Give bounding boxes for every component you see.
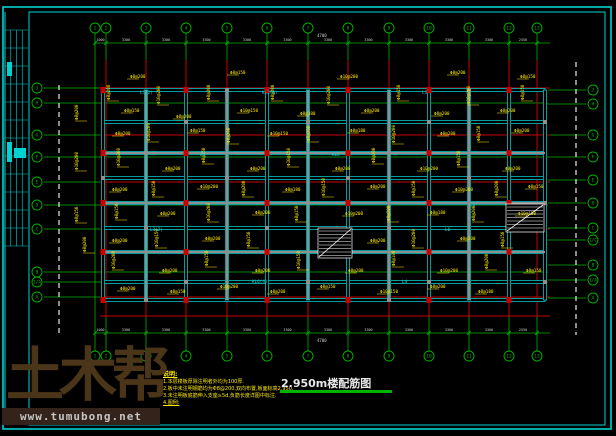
column-red	[507, 87, 512, 93]
rebar-annotation: Φ8@200	[82, 236, 88, 252]
watermark-logo: 土木帮	[6, 346, 165, 404]
axis-bubble-label: 2	[105, 26, 108, 32]
column-gray	[144, 298, 148, 302]
axis-bubble-label: 11	[466, 354, 472, 360]
axis-bubble-label: C	[592, 226, 595, 232]
column-red	[427, 297, 432, 303]
column-gray	[387, 298, 391, 302]
column-red	[346, 200, 351, 206]
dimension-value: 3300	[405, 328, 413, 332]
axis-bubble-label: 10	[426, 354, 432, 360]
rebar-annotation: Φ8@150	[151, 180, 157, 196]
axis-bubble-label: 6	[266, 26, 269, 32]
rebar-annotation: Φ8@150	[246, 231, 252, 247]
rebar-annotation: Φ8@150	[476, 125, 482, 141]
dimension-value: 3300	[324, 38, 332, 42]
axis-bubble-label: G	[592, 133, 595, 139]
column-red	[101, 297, 106, 303]
beam-name-label: KL5	[332, 152, 340, 158]
dimension-value: 3300	[162, 328, 170, 332]
column-red	[101, 150, 106, 156]
rebar-annotation: Φ8@150	[411, 180, 417, 196]
rebar-annotation: Φ8@200	[206, 84, 212, 100]
axis-bubble-label: F	[592, 155, 595, 161]
notes-heading: 说明:	[163, 369, 283, 378]
axis-bubble-label: C	[36, 227, 39, 233]
rebar-annotation: Φ8@200	[241, 180, 247, 196]
axis-bubble-label: 7	[307, 354, 310, 360]
axis-bubble-label: H	[592, 102, 595, 108]
axis-bubble-label: A	[36, 295, 39, 301]
dimension-value: 3300	[485, 38, 493, 42]
column-gray	[427, 120, 431, 124]
beam-name-label: L6	[445, 227, 451, 233]
rebar-annotation: Φ8@150	[520, 84, 526, 100]
column-gray	[225, 176, 229, 180]
axis-bubble-label: 4	[185, 354, 188, 360]
column-gray	[387, 226, 391, 230]
beam-vertical	[101, 90, 104, 300]
axis-bubble-label: 5	[226, 26, 229, 32]
column-red	[101, 249, 106, 255]
axis-bubble-label: A	[592, 296, 595, 302]
column-gray	[184, 280, 188, 284]
column-red	[184, 87, 189, 93]
beam-name-label: L4	[402, 279, 408, 285]
axis-bubble-label: 13	[534, 26, 540, 32]
axis-bubble-label: D	[592, 201, 595, 207]
note-line: 4.图例:	[163, 400, 283, 407]
column-red	[184, 150, 189, 156]
axis-bubble-label: 1/A	[33, 280, 41, 286]
axis-bubble-label: 1/C	[589, 238, 597, 244]
axis-bubble-label: J	[592, 88, 595, 94]
dimension-value: 3300	[364, 38, 372, 42]
axis-bubble-label: 11	[466, 26, 472, 32]
rebar-annotation: Φ8@150	[500, 231, 506, 247]
axis-bubble-label: 6	[266, 354, 269, 360]
rebar-annotation: Φ10@200	[146, 122, 152, 141]
rebar-annotation: Φ10@200	[411, 228, 417, 247]
rebar-annotation: Φ8@200	[106, 84, 112, 100]
rebar-annotation: Φ8@200	[371, 147, 377, 163]
axis-bubble-label: D	[36, 203, 39, 209]
axis-bubble-label: 8	[347, 354, 350, 360]
notes-block: 说明: 1.本层楼板厚除注明者外均为100厚. 2.板中未注明钢筋均为Φ8@20…	[163, 369, 283, 407]
column-gray	[306, 120, 310, 124]
dimension-value: 3300	[162, 38, 170, 42]
rebar-annotation: Φ10@150	[321, 177, 327, 196]
column-red	[507, 297, 512, 303]
dimension-value: 3300	[364, 328, 372, 332]
dimension-value: 3300	[445, 38, 453, 42]
dimension-value: 3300	[283, 328, 291, 332]
titleblock-cell-mark	[14, 148, 26, 158]
column-gray	[225, 250, 229, 254]
column-red	[184, 200, 189, 206]
rebar-annotation: Φ8@200	[226, 127, 232, 143]
dimension-value: 3300	[202, 38, 210, 42]
axis-bubble-label: 1	[94, 26, 97, 32]
rebar-annotation: Φ10@200	[466, 85, 472, 104]
note-line: 3.未注明板底筋伸入支座≥5d,负筋长度详图中标注.	[163, 393, 283, 400]
dimension-value: 1000	[96, 328, 104, 332]
rebar-annotation: Φ8@200	[306, 125, 312, 141]
beam-horizontal	[103, 88, 545, 91]
column-gray	[225, 88, 229, 92]
column-red	[265, 150, 270, 156]
column-red	[101, 200, 106, 206]
rebar-annotation: Φ10@200	[156, 85, 162, 104]
column-red	[427, 200, 432, 206]
axis-bubble-label: E	[36, 180, 39, 186]
axis-bubble-label: F	[36, 155, 39, 161]
rebar-annotation: Φ8@150	[204, 250, 210, 266]
rebar-annotation: Φ8@200	[484, 253, 490, 269]
column-gray	[467, 250, 471, 254]
dimension-value: 3300	[445, 328, 453, 332]
rebar-annotation: Φ8@200	[494, 180, 500, 196]
rebar-annotation: Φ8@150	[456, 150, 462, 166]
dimension-value: 3300	[122, 328, 130, 332]
rebar-annotation: Φ8@180	[391, 250, 397, 266]
dimension-value: 3300	[405, 38, 413, 42]
axis-bubble-label: J	[36, 86, 39, 92]
beam-horizontal	[103, 120, 545, 123]
rebar-annotation: Φ8@150	[114, 203, 120, 219]
dimension-value: 1000	[96, 38, 104, 42]
beam-name-label: L1	[422, 90, 428, 96]
column-gray	[467, 176, 471, 180]
column-gray	[306, 280, 310, 284]
rebar-annotation: Φ10@200	[206, 202, 212, 221]
axis-bubble-label: 1/A	[589, 278, 597, 284]
dimension-value: 4700	[317, 338, 327, 343]
axis-bubble-label: 5	[226, 354, 229, 360]
axis-bubble-label: B	[36, 270, 39, 276]
axis-bubble-label: 7	[307, 26, 310, 32]
dimension-value: 3300	[324, 328, 332, 332]
dimension-value: 3300	[283, 38, 291, 42]
axis-bubble-label: G	[36, 133, 39, 139]
beam-horizontal	[103, 298, 545, 301]
column-red	[507, 150, 512, 156]
axis-bubble-label: 10	[426, 26, 432, 32]
rebar-annotation: Φ10@200	[391, 124, 397, 143]
rebar-annotation: Φ10@150	[286, 147, 292, 166]
axis-bubble-label: 3	[145, 26, 148, 32]
column-red	[101, 87, 106, 93]
axis-bubble-label: 12	[506, 26, 512, 32]
rebar-annotation: Φ10@200	[116, 147, 122, 166]
column-gray	[265, 226, 269, 230]
axis-bubble-label: 9	[388, 26, 391, 32]
beam-name-label: L3(2)	[150, 227, 163, 233]
dimension-value: 2550	[519, 38, 527, 42]
dimension-value: 3300	[243, 38, 251, 42]
column-red	[265, 249, 270, 255]
rebar-annotation: Φ8@150	[294, 205, 300, 221]
column-red	[346, 297, 351, 303]
beam-name-label: L1(2)	[140, 90, 153, 96]
drawing-title-underline	[280, 390, 392, 393]
rebar-annotation: Φ8@200	[74, 104, 80, 120]
axis-bubble-label: B	[592, 263, 595, 269]
beam-name-label: KL6(4)	[252, 279, 268, 285]
beam-name-label: L2	[470, 202, 476, 208]
axis-bubble-label: 12	[506, 354, 512, 360]
axis-bubble-label: 13	[534, 354, 540, 360]
column-gray	[144, 151, 148, 155]
dimension-value: 3300	[122, 38, 130, 42]
rebar-annotation: Φ8@150	[396, 84, 402, 100]
column-red	[427, 150, 432, 156]
column-gray	[543, 120, 547, 124]
titleblock-cell-mark	[7, 62, 12, 76]
rebar-annotation: Φ10@200	[326, 85, 332, 104]
column-red	[427, 249, 432, 255]
dimension-value: 2550	[519, 328, 527, 332]
dimension-value: 3300	[243, 328, 251, 332]
column-gray	[184, 120, 188, 124]
column-red	[184, 297, 189, 303]
beam-name-label: KL2(6)	[262, 90, 278, 96]
axis-bubble-label: 9	[388, 354, 391, 360]
column-gray	[427, 280, 431, 284]
note-line: 2.板中未注明钢筋均为Φ8@200,双向布置,板面标高2.950.	[163, 386, 283, 393]
dimension-value: 3300	[485, 328, 493, 332]
dimension-value: 3300	[202, 328, 210, 332]
axis-bubble-label: E	[592, 178, 595, 184]
beam-horizontal	[103, 280, 545, 283]
cad-viewport[interactable]: 1000330033003300330033003300330033003300…	[0, 0, 616, 436]
beam-vertical	[507, 90, 510, 300]
column-gray	[306, 201, 310, 205]
rebar-annotation: Φ8@200	[386, 205, 392, 221]
column-gray	[346, 176, 350, 180]
rebar-annotation: Φ8@150	[74, 206, 80, 222]
watermark-site-url: www.tumubong.net	[20, 410, 142, 423]
axis-bubble-label: H	[36, 101, 39, 107]
column-red	[346, 150, 351, 156]
column-gray	[387, 151, 391, 155]
column-red	[265, 297, 270, 303]
column-gray	[543, 280, 547, 284]
axis-bubble-label: 8	[347, 26, 350, 32]
axis-bubble-label: 4	[185, 26, 188, 32]
titleblock-cell-mark	[7, 142, 12, 162]
rebar-annotation: Φ10@200	[74, 151, 80, 170]
rebar-annotation: Φ10@150	[296, 250, 302, 269]
dimension-value: 4700	[317, 33, 327, 38]
drawing-title: 2.950m楼配筋图	[281, 375, 371, 391]
column-red	[184, 249, 189, 255]
watermark-site-band: www.tumubong.net	[2, 408, 160, 425]
column-red	[427, 87, 432, 93]
rebar-annotation: Φ10@200	[111, 250, 117, 269]
column-gray	[144, 226, 148, 230]
column-red	[507, 249, 512, 255]
column-red	[346, 87, 351, 93]
note-line: 1.本层楼板厚除注明者外均为100厚.	[163, 379, 283, 386]
beam-name-label: L5	[200, 152, 206, 158]
column-red	[265, 200, 270, 206]
column-gray	[101, 176, 105, 180]
